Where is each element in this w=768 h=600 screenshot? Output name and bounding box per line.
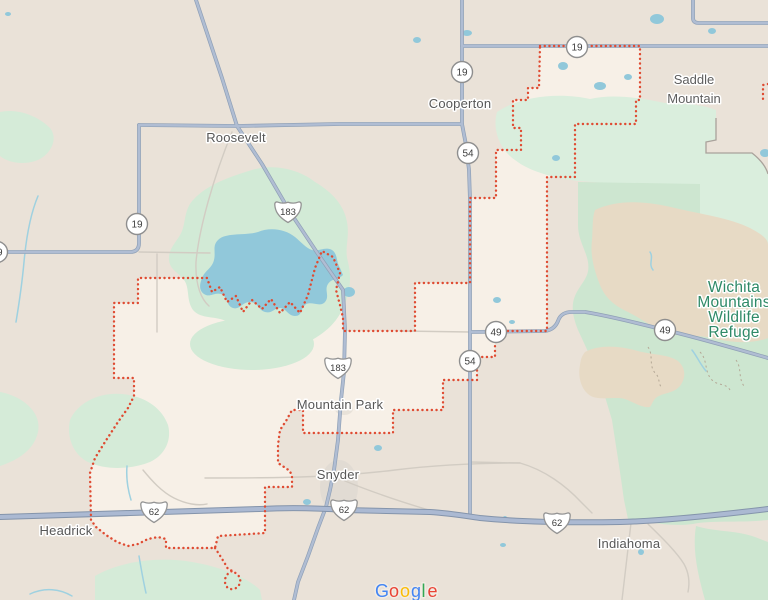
shield-49-number: 49 — [490, 328, 502, 339]
shield-19-number: 19 — [131, 220, 143, 231]
shield-183-number: 183 — [280, 207, 296, 218]
google-logo-letter[interactable]: e — [428, 581, 438, 600]
area-label-wildlife-refuge[interactable]: Refuge — [708, 324, 759, 341]
town-label-cooperton[interactable]: Cooperton — [429, 96, 492, 111]
google-logo-letter[interactable]: o — [400, 581, 410, 600]
pond — [509, 320, 515, 324]
town-label-headrick[interactable]: Headrick — [40, 523, 93, 538]
shield-62-number: 62 — [552, 518, 563, 529]
shield-19-number: 19 — [456, 68, 468, 79]
shield-19-icon: 19 — [567, 37, 588, 58]
pond — [303, 499, 311, 505]
pond — [624, 74, 632, 80]
pond — [5, 12, 11, 16]
map-viewport[interactable]: 19 19 19 19 54 54 49 49 183 183 — [0, 0, 768, 600]
shield-62-number: 62 — [149, 507, 160, 518]
google-logo-letter[interactable]: G — [375, 581, 389, 600]
pond — [708, 28, 716, 34]
shield-19-icon: 19 — [452, 62, 473, 83]
google-logo[interactable]: G o o g l e — [375, 581, 438, 600]
town-label-snyder[interactable]: Snyder — [317, 467, 360, 482]
pond — [493, 297, 501, 303]
town-label-mountain-park[interactable]: Mountain Park — [297, 397, 384, 412]
shield-19-number: 19 — [571, 43, 583, 54]
shield-54-number: 54 — [464, 357, 476, 368]
pond — [500, 543, 506, 547]
shield-54-icon: 54 — [458, 143, 479, 164]
pond — [413, 37, 421, 43]
google-logo-letter[interactable]: g — [411, 581, 421, 600]
shield-54-icon: 54 — [460, 351, 481, 372]
pond — [650, 14, 664, 24]
pond — [558, 62, 568, 70]
area-label-saddle-mountain[interactable]: Mountain — [667, 91, 720, 106]
shield-49-icon: 49 — [486, 322, 507, 343]
park-south-of-lake — [190, 318, 314, 370]
shield-19-icon: 19 — [127, 214, 148, 235]
map-canvas[interactable]: 19 19 19 19 54 54 49 49 183 183 — [0, 0, 768, 600]
pond — [552, 155, 560, 161]
google-logo-letter[interactable]: l — [422, 581, 426, 600]
area-label-saddle-mountain[interactable]: Saddle — [674, 72, 714, 87]
shield-62-number: 62 — [339, 505, 350, 516]
pond — [594, 82, 606, 90]
shield-183-number: 183 — [330, 363, 346, 374]
town-label-indiahoma[interactable]: Indiahoma — [598, 536, 661, 551]
shield-19-number: 19 — [0, 248, 3, 259]
town-label-roosevelt[interactable]: Roosevelt — [206, 130, 266, 145]
shield-54-number: 54 — [462, 149, 474, 160]
google-logo-letter[interactable]: o — [389, 581, 399, 600]
pond — [374, 445, 382, 451]
shield-49-number: 49 — [659, 326, 671, 337]
shield-49-icon: 49 — [655, 320, 676, 341]
